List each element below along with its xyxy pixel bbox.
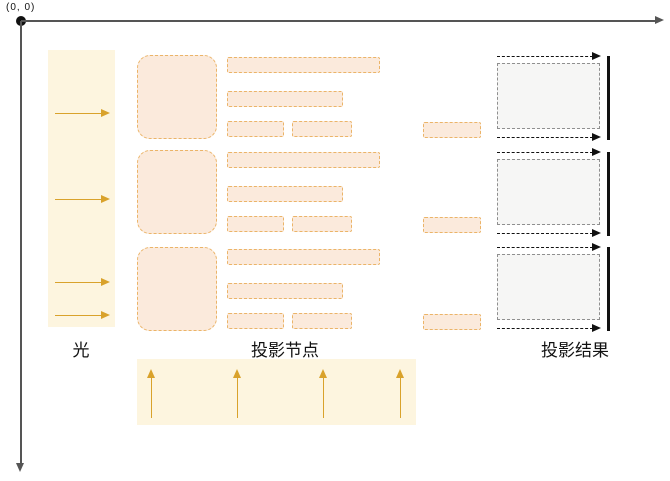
projection-arrow-icon — [497, 229, 601, 238]
light-ray-up-arrow-icon — [396, 369, 405, 418]
projection-result-group — [0, 148, 670, 240]
projection-screen-bar — [607, 152, 610, 236]
projection-result-group — [0, 52, 670, 144]
projection-plane — [497, 254, 600, 320]
projection-plane — [497, 159, 600, 225]
projection-result-group — [0, 243, 670, 335]
results-label: 投影结果 — [541, 336, 609, 361]
light-ray-up-arrow-icon — [319, 369, 328, 418]
y-axis-arrowhead-icon — [16, 463, 24, 472]
nodes-label: 投影节点 — [251, 336, 319, 361]
projection-plane — [497, 63, 600, 129]
origin-label: (0, 0) — [6, 2, 35, 13]
light-ray-up-arrow-icon — [233, 369, 242, 418]
light-label: 光 — [73, 336, 90, 361]
diagram-canvas: (0, 0) — [0, 0, 670, 481]
projection-arrow-icon — [497, 133, 601, 142]
projection-arrow-icon — [497, 324, 601, 333]
light-ray-up-arrow-icon — [147, 369, 156, 418]
projection-screen-bar — [607, 56, 610, 140]
x-axis-arrowhead-icon — [655, 16, 664, 24]
x-axis — [21, 20, 655, 22]
projection-arrow-icon — [497, 243, 601, 252]
projection-screen-bar — [607, 247, 610, 331]
projection-arrow-icon — [497, 148, 601, 157]
projection-arrow-icon — [497, 52, 601, 61]
bottom-light-band — [137, 359, 416, 425]
